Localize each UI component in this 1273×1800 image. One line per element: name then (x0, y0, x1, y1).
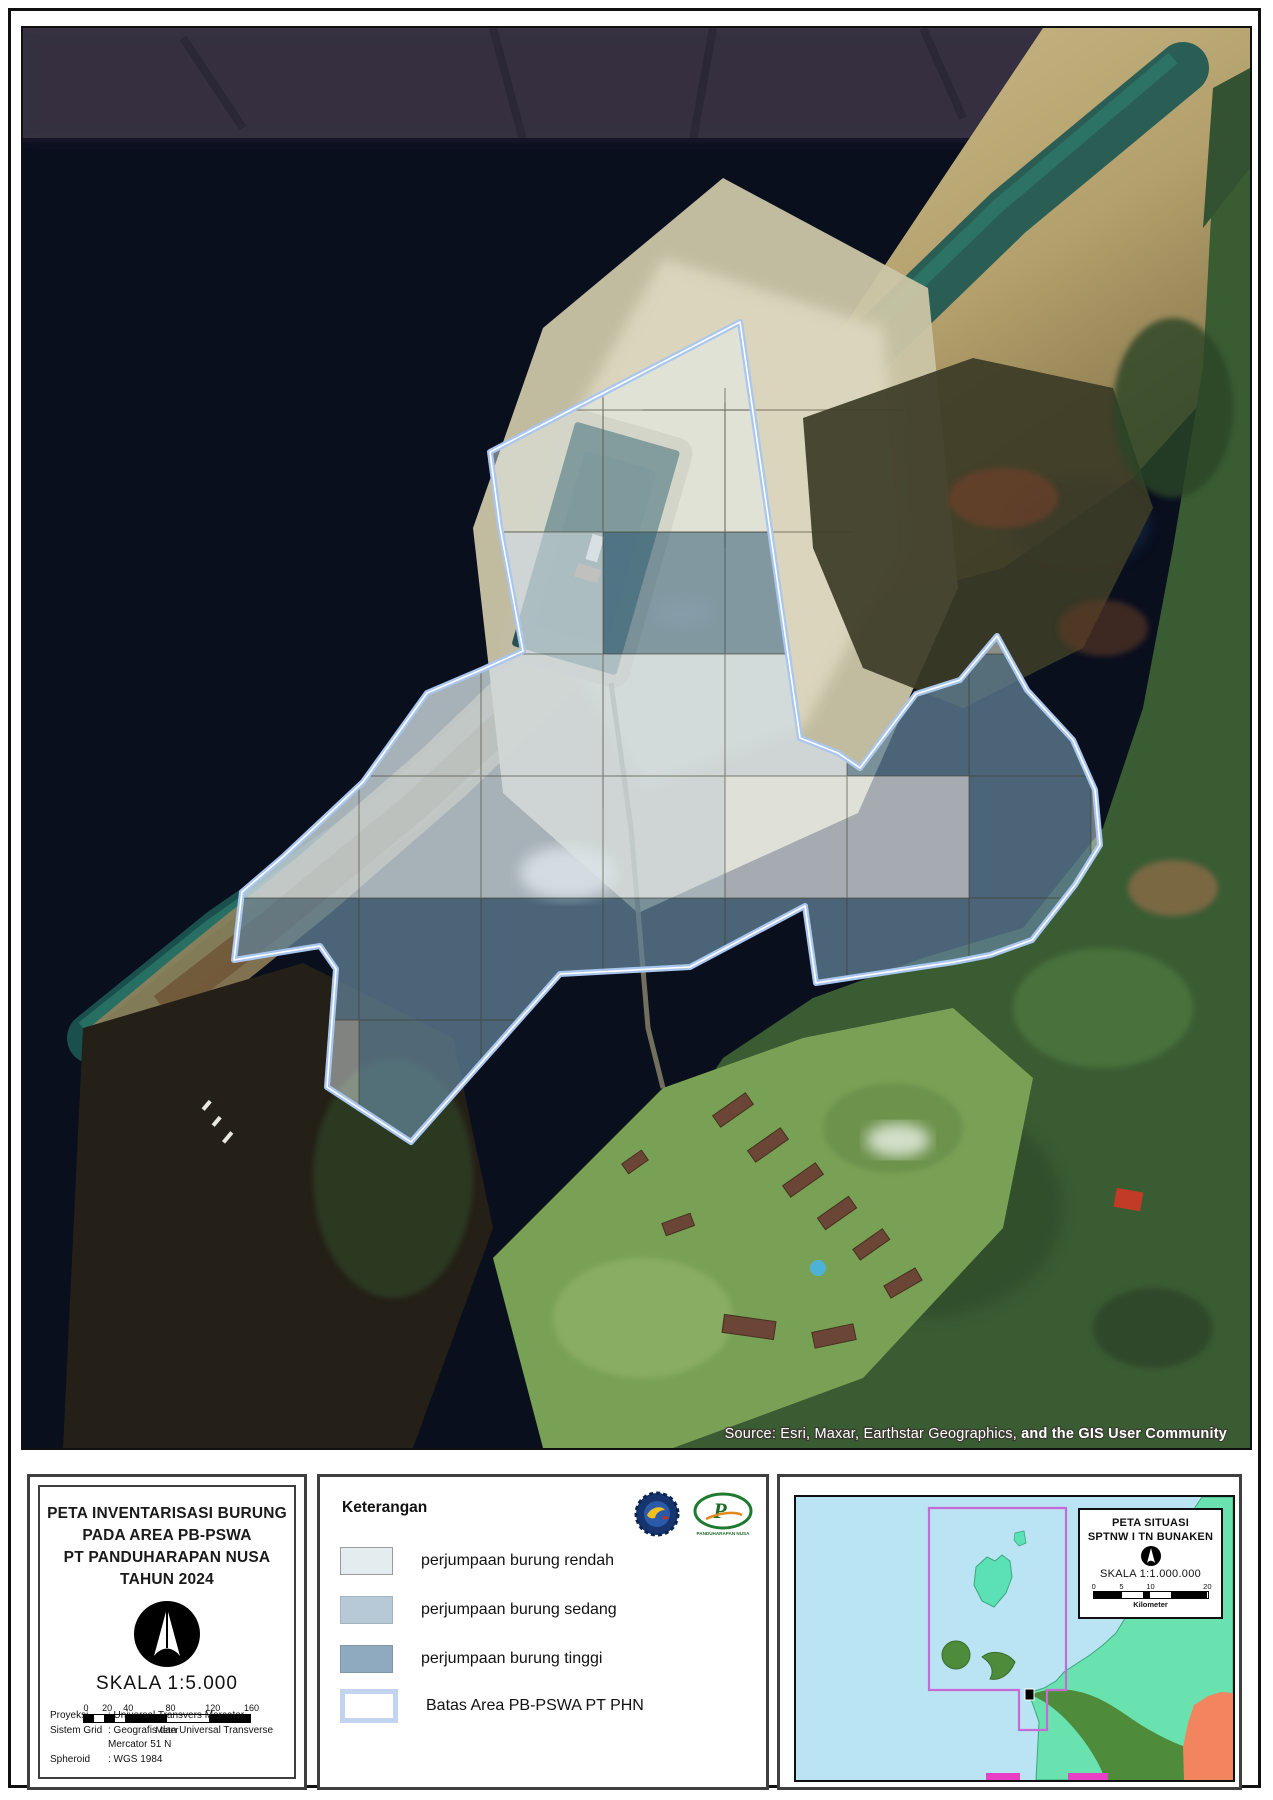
map-title: PETA INVENTARISASI BURUNG PADA AREA PB-P… (40, 1503, 294, 1591)
inset-magenta-2 (1068, 1773, 1108, 1780)
pt-phn-logo-icon: P PANDUHARAPAN NUSA (692, 1491, 754, 1543)
title-block-inner: PETA INVENTARISASI BURUNG PADA AREA PB-P… (38, 1485, 296, 1779)
map-layout-page: Source: Esri, Maxar, Earthstar Geographi… (0, 0, 1273, 1800)
svg-text:P: P (712, 1498, 727, 1523)
legend-item-rendah: perjumpaan burung rendah (340, 1547, 614, 1575)
inset-title: PETA SITUASI SPTNW I TN BUNAKEN (1080, 1516, 1221, 1544)
satellite-map-canvas: Source: Esri, Maxar, Earthstar Geographi… (23, 28, 1250, 1448)
density-cell-rendah (725, 776, 847, 898)
density-cell-tinggi (359, 898, 481, 1020)
inset-map: PETA SITUASI SPTNW I TN BUNAKEN SKALA 1:… (794, 1495, 1235, 1782)
title-line-3: PT PANDUHARAPAN NUSA (40, 1547, 294, 1569)
main-map: Source: Esri, Maxar, Earthstar Geographi… (21, 26, 1252, 1450)
scale-tick: 10 (1146, 1582, 1154, 1591)
legend-label: perjumpaan burung rendah (421, 1552, 614, 1570)
proj-value: : WGS 1984 (108, 1753, 288, 1768)
density-cell-tinggi (603, 532, 725, 654)
swatch-sedang (340, 1596, 393, 1624)
main-scale-label: SKALA 1:5.000 (40, 1673, 294, 1695)
proj-label: Proyeksi (50, 1709, 108, 1724)
swatch-rendah (340, 1547, 393, 1575)
inset-info-box: PETA SITUASI SPTNW I TN BUNAKEN SKALA 1:… (1078, 1508, 1223, 1619)
density-cell-sedang (603, 654, 725, 776)
title-line-2: PADA AREA PB-PSWA (40, 1525, 294, 1547)
seagrass-red-2 (1058, 600, 1148, 656)
legend-item-tinggi: perjumpaan burung tinggi (340, 1645, 602, 1673)
density-cell-tinggi (969, 776, 1091, 898)
proj-value: : Geografis dan Universal Transverse Mer… (108, 1724, 288, 1753)
inset-scale-label: SKALA 1:1.000.000 (1080, 1568, 1221, 1580)
proj-label: Spheroid (50, 1753, 108, 1768)
forest-dark-3 (1093, 1288, 1213, 1368)
density-cell-rendah (847, 776, 969, 898)
forest-dark-1 (1113, 318, 1233, 498)
inset-location-marker (1025, 1689, 1034, 1700)
density-cell-sedang (481, 776, 603, 898)
proj-label: Sistem Grid (50, 1724, 108, 1753)
density-cell-sedang (603, 776, 725, 898)
inset-magenta-1 (986, 1773, 1020, 1780)
north-arrow-icon (132, 1599, 202, 1669)
inset-situation-box: PETA SITUASI SPTNW I TN BUNAKEN SKALA 1:… (777, 1474, 1242, 1790)
scale-tick: 20 (1203, 1582, 1211, 1591)
inset-north-arrow-icon (1140, 1545, 1162, 1567)
legend: Keterangan P PANDUHARAPAN NUSA perjumpaa… (317, 1474, 769, 1790)
swatch-batas (340, 1689, 398, 1723)
inset-title-line-2: SPTNW I TN BUNAKEN (1080, 1530, 1221, 1544)
projection-info: Proyeksi: Universal Transvers Mercator S… (50, 1709, 288, 1767)
swatch-tinggi (340, 1645, 393, 1673)
forest-light-1 (1013, 948, 1193, 1068)
legend-label: perjumpaan burung tinggi (421, 1650, 602, 1668)
legend-label: perjumpaan burung sedang (421, 1601, 617, 1619)
inset-scale-bar: 0 5 10 20 Kilometer (1093, 1582, 1209, 1609)
seagrass-red-1 (948, 468, 1058, 528)
density-cell-sedang (481, 654, 603, 776)
inset-title-line-1: PETA SITUASI (1080, 1516, 1221, 1530)
cloud-2 (866, 1123, 930, 1157)
soil-patch-1 (1128, 860, 1218, 916)
title-line-4: TAHUN 2024 (40, 1569, 294, 1591)
legend-label: Batas Area PB-PSWA PT PHN (426, 1697, 644, 1715)
scale-tick: 5 (1119, 1582, 1123, 1591)
title-block: PETA INVENTARISASI BURUNG PADA AREA PB-P… (27, 1474, 307, 1790)
legend-title: Keterangan (342, 1499, 427, 1517)
proj-value: : Universal Transvers Mercator (108, 1709, 288, 1724)
inset-scale-unit: Kilometer (1093, 1600, 1209, 1609)
legend-logos: P PANDUHARAPAN NUSA (634, 1491, 754, 1543)
inset-island-manadotua (942, 1641, 970, 1669)
scale-tick: 0 (1092, 1582, 1096, 1591)
legend-item-batas: Batas Area PB-PSWA PT PHN (340, 1689, 644, 1723)
title-line-1: PETA INVENTARISASI BURUNG (40, 1503, 294, 1525)
legend-item-sedang: perjumpaan burung sedang (340, 1596, 617, 1624)
tn-bunaken-logo-icon (634, 1491, 680, 1543)
svg-text:PANDUHARAPAN NUSA: PANDUHARAPAN NUSA (697, 1531, 751, 1536)
source-attribution: Source: Esri, Maxar, Earthstar Geographi… (725, 1426, 1227, 1442)
density-cell-sedang (359, 776, 481, 898)
